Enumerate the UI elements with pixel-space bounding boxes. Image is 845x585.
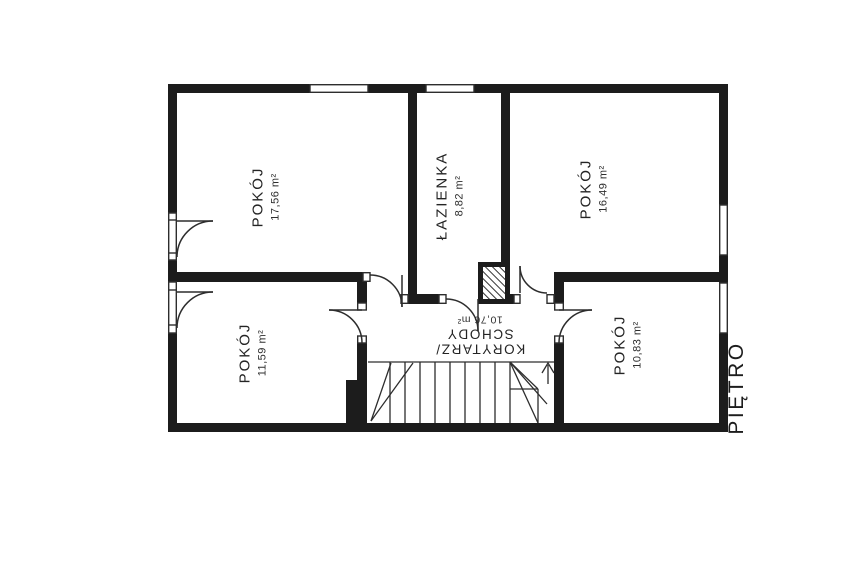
door-jamb — [514, 295, 520, 304]
door-swing-arc — [177, 292, 213, 328]
door-jamb — [169, 213, 177, 220]
door-jamb — [169, 282, 177, 290]
door-jamb — [169, 253, 177, 260]
room-name: POKÓJ — [250, 167, 268, 228]
wall-bathroom-left — [408, 93, 417, 294]
wall-pier — [346, 380, 357, 423]
room-name: POKÓJ — [578, 159, 596, 220]
room-label-pokoj-top-left: POKÓJ 17,56 m² — [250, 167, 283, 228]
wall-bathroom-bottom — [408, 294, 439, 304]
floor-plan-drawing — [0, 0, 845, 585]
window-top-1 — [310, 85, 368, 93]
wall-bottom — [168, 423, 728, 432]
room-area: 10,76 m² — [435, 314, 525, 326]
stair-direction-arrow — [542, 363, 554, 384]
door-jamb — [358, 303, 367, 310]
wall-bathroom-right — [501, 93, 510, 262]
wall-topleft-room-bottom — [168, 272, 370, 282]
door-jamb — [547, 295, 554, 304]
room-area: 10,83 m² — [631, 315, 645, 376]
room-name: KORYTARZ/ — [435, 342, 525, 357]
room-name: POKÓJ — [237, 323, 255, 384]
door-jamb — [169, 325, 177, 333]
staircase — [368, 362, 554, 423]
stair-treads — [390, 362, 510, 423]
room-label-pokoj-top-right: POKÓJ 16,49 m² — [578, 159, 611, 220]
wall-right-rooms-divider — [554, 272, 719, 282]
window-right-2 — [720, 283, 728, 333]
door-jamb — [439, 295, 446, 304]
room-label-lazienka: ŁAZIENKA 8,82 m² — [434, 152, 467, 241]
chimney-hatch — [483, 267, 505, 299]
room-label-pokoj-bottom-right: POKÓJ 10,83 m² — [612, 315, 645, 376]
door-top-left-room — [370, 275, 402, 307]
door-exterior-1 — [177, 221, 213, 257]
room-name: ŁAZIENKA — [434, 152, 452, 241]
door-top-right-room — [520, 266, 547, 293]
door-jamb — [555, 303, 564, 310]
room-name-line2: SCHODY — [435, 327, 525, 342]
room-name: POKÓJ — [612, 315, 630, 376]
floor-plan-canvas: POKÓJ 17,56 m² ŁAZIENKA 8,82 m² POKÓJ 16… — [0, 0, 845, 585]
wall-bottomleft-room-right-lower — [357, 343, 367, 423]
wall-bottomright-room-left-lower — [554, 343, 564, 423]
door-swing-arc — [177, 221, 213, 257]
room-area: 17,56 m² — [269, 167, 283, 228]
window-right-1 — [720, 205, 728, 255]
window-top-2 — [426, 85, 474, 93]
floor-title: PIĘTRO — [725, 341, 749, 434]
door-swing-arc — [520, 266, 547, 293]
room-area: 8,82 m² — [453, 152, 467, 241]
stair-winders-right — [510, 362, 547, 423]
stair-winders-left — [371, 363, 413, 421]
room-area: 11,59 m² — [256, 323, 270, 384]
room-area: 16,49 m² — [597, 159, 611, 220]
door-jamb — [363, 273, 370, 282]
door-swing-arc — [370, 275, 402, 307]
door-exterior-2 — [177, 292, 213, 328]
chimney-shaft — [478, 262, 510, 304]
room-label-pokoj-bottom-left: POKÓJ 11,59 m² — [237, 323, 270, 384]
room-label-korytarz-schody: KORYTARZ/ SCHODY 10,76 m² — [435, 314, 525, 357]
